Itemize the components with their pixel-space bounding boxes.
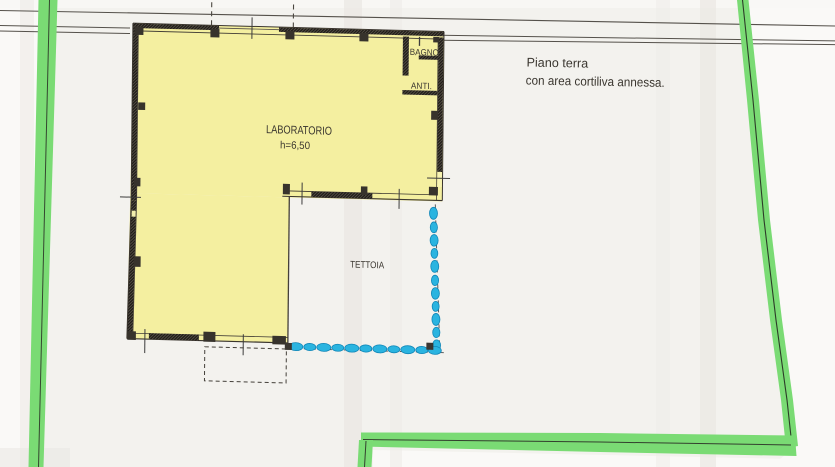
svg-text:TETTOIA: TETTOIA xyxy=(350,259,385,271)
svg-text:BAGNO: BAGNO xyxy=(410,47,439,58)
svg-text:ANTI.: ANTI. xyxy=(411,81,432,92)
svg-text:con area cortiliva annessa.: con area cortiliva annessa. xyxy=(526,73,665,89)
svg-text:Piano terra: Piano terra xyxy=(526,56,588,71)
svg-text:LABORATORIO: LABORATORIO xyxy=(266,123,332,138)
svg-text:h=6,50: h=6,50 xyxy=(280,139,310,152)
